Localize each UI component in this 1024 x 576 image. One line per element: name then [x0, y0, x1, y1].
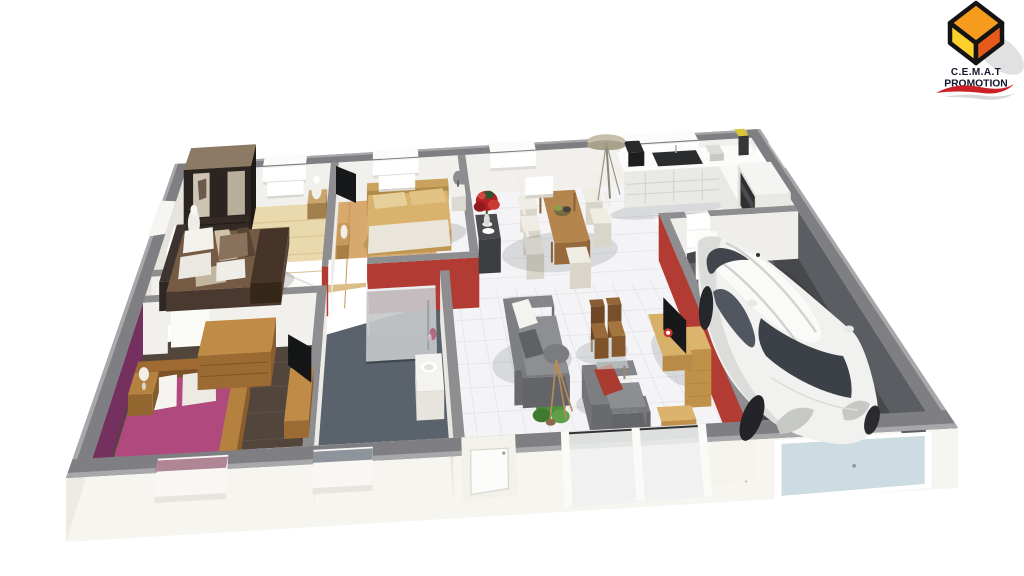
- svg-text:C.E.M.A.T: C.E.M.A.T: [951, 67, 1001, 78]
